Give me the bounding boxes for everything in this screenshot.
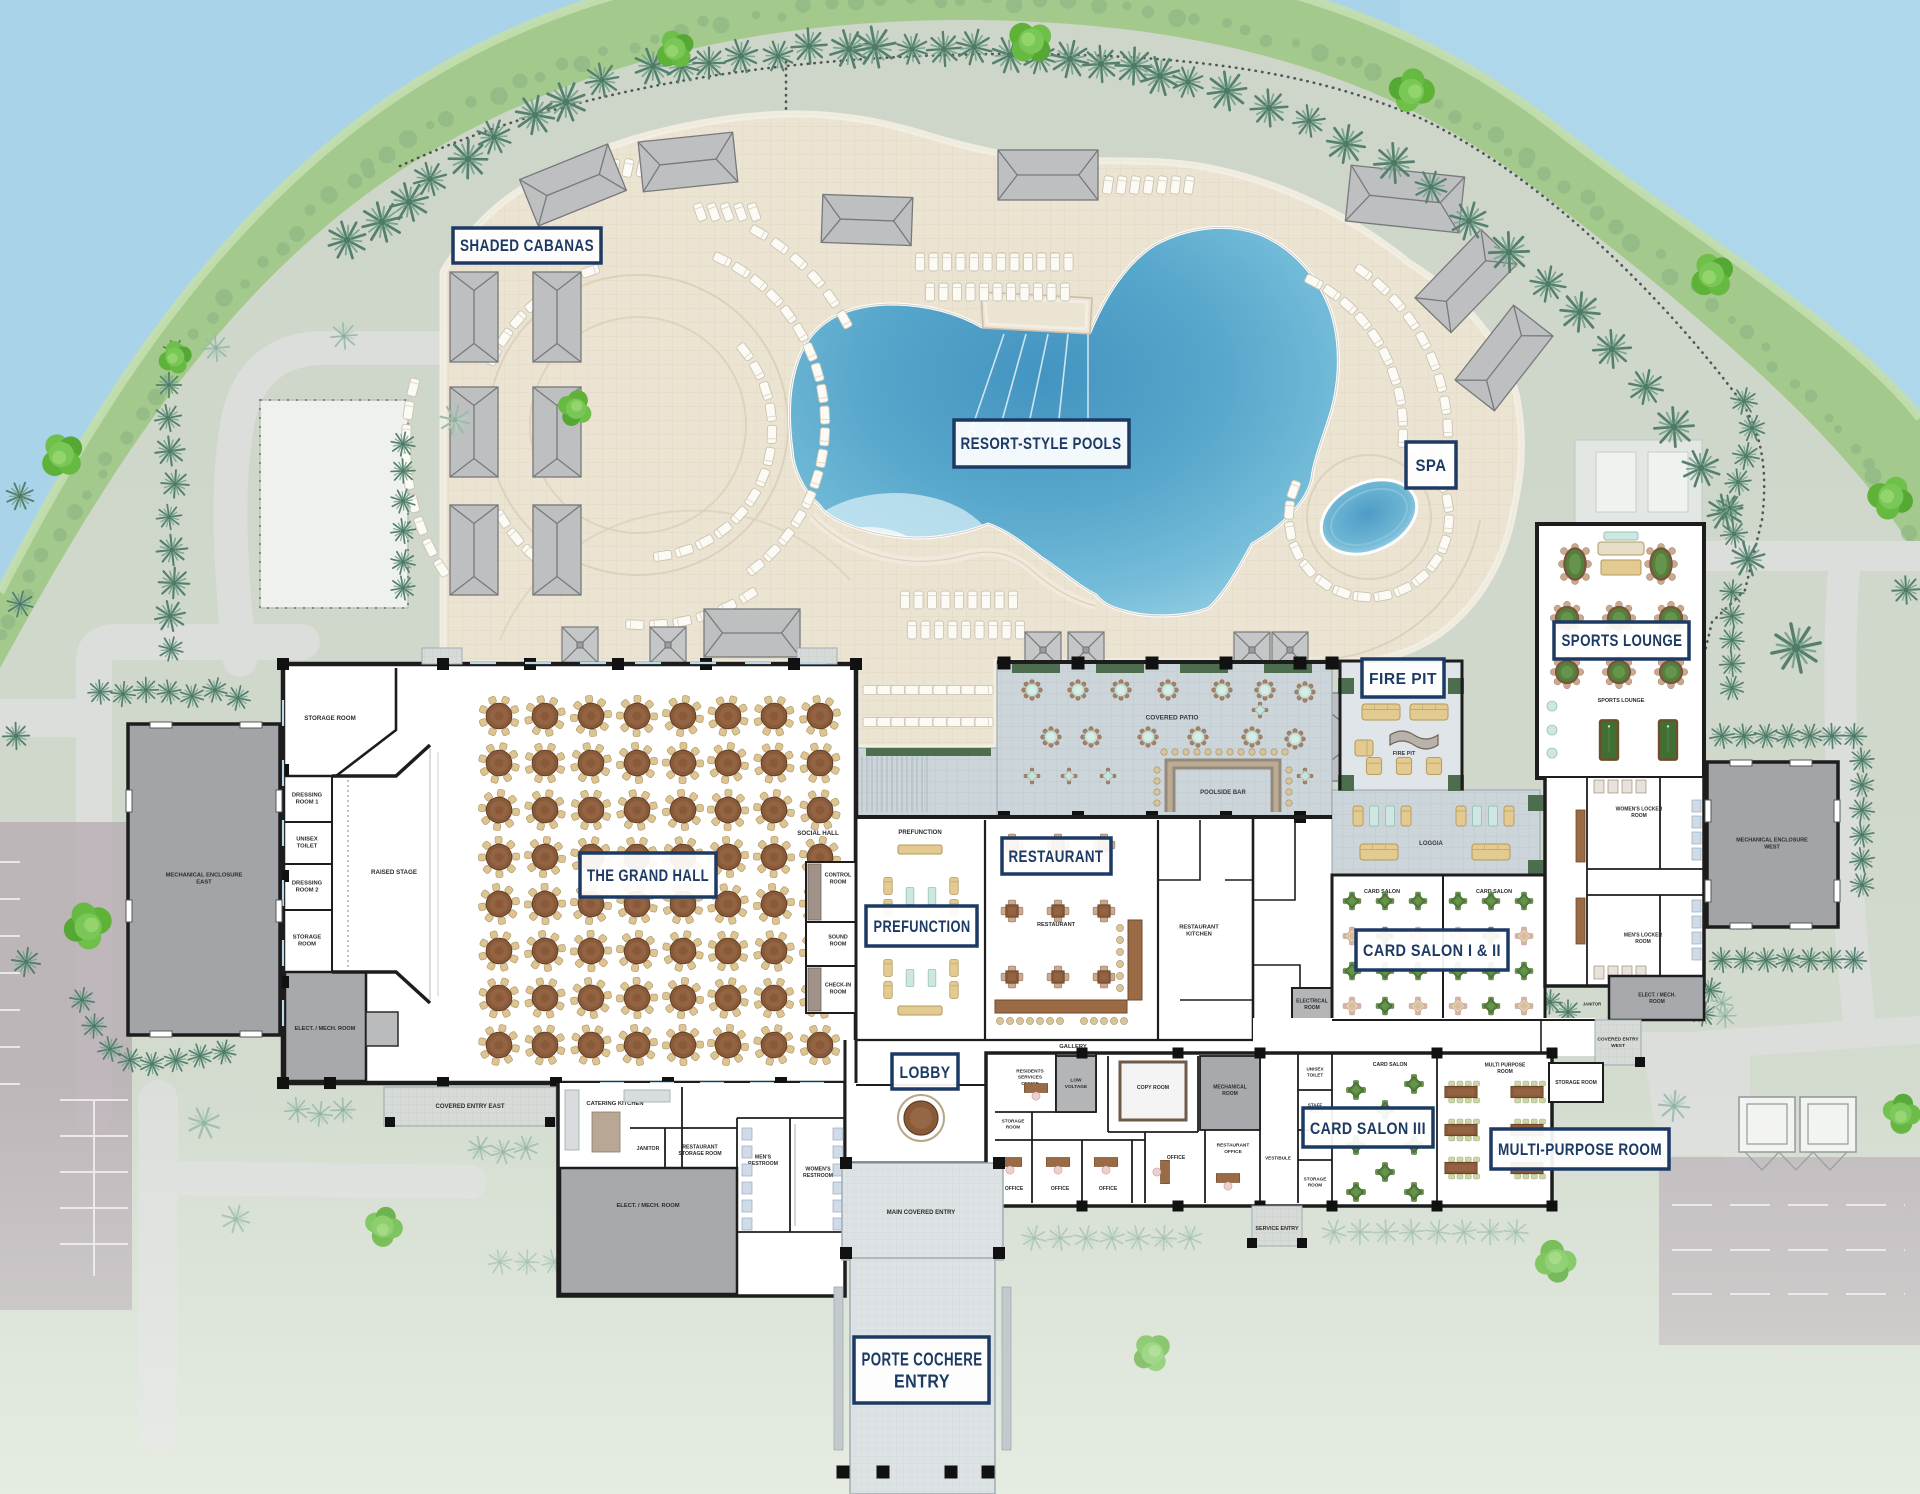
- svg-text:FIRE PIT: FIRE PIT: [1393, 751, 1416, 757]
- svg-text:ELECT. / MECH. ROOM: ELECT. / MECH. ROOM: [295, 1026, 356, 1032]
- svg-text:SHADED CABANAS: SHADED CABANAS: [460, 237, 594, 255]
- svg-text:PREFUNCTION: PREFUNCTION: [874, 918, 971, 936]
- svg-text:ROOM: ROOM: [830, 941, 847, 947]
- svg-text:POOLSIDE BAR: POOLSIDE BAR: [1200, 790, 1246, 796]
- svg-text:SOCIAL HALL: SOCIAL HALL: [797, 830, 839, 837]
- svg-text:ROOM: ROOM: [1304, 1005, 1320, 1011]
- svg-text:STORAGE ROOM: STORAGE ROOM: [678, 1151, 721, 1157]
- svg-text:ROOM: ROOM: [1222, 1091, 1238, 1097]
- svg-text:MAIN COVERED ENTRY: MAIN COVERED ENTRY: [887, 1210, 955, 1216]
- svg-text:CARD SALON: CARD SALON: [1364, 889, 1400, 895]
- svg-text:ROOM: ROOM: [298, 942, 316, 948]
- svg-text:DRESSING: DRESSING: [292, 792, 323, 798]
- svg-text:RESTAURANT: RESTAURANT: [1037, 922, 1076, 928]
- svg-text:COVERED ENTRY: COVERED ENTRY: [1597, 1037, 1639, 1043]
- svg-text:STORAGE ROOM: STORAGE ROOM: [304, 715, 355, 722]
- svg-text:CARD SALON I & II: CARD SALON I & II: [1363, 941, 1501, 960]
- svg-text:LOW: LOW: [1070, 1078, 1082, 1084]
- svg-text:JANITOR: JANITOR: [637, 1146, 660, 1152]
- svg-text:PREFUNCTION: PREFUNCTION: [898, 830, 941, 836]
- svg-text:SERVICE ENTRY: SERVICE ENTRY: [1255, 1226, 1299, 1232]
- svg-text:OFFICE: OFFICE: [1005, 1186, 1024, 1192]
- svg-text:ROOM 1: ROOM 1: [296, 800, 320, 806]
- svg-text:SPORTS LOUNGE: SPORTS LOUNGE: [1562, 632, 1683, 650]
- svg-text:COPY ROOM: COPY ROOM: [1137, 1085, 1169, 1091]
- svg-text:CARD SALON: CARD SALON: [1373, 1062, 1408, 1068]
- svg-text:CONTROL: CONTROL: [825, 872, 852, 878]
- svg-text:PORTE COCHERE: PORTE COCHERE: [862, 1350, 983, 1370]
- svg-text:SPORTS LOUNGE: SPORTS LOUNGE: [1598, 698, 1645, 704]
- svg-text:MEN'S: MEN'S: [755, 1154, 772, 1160]
- svg-text:VOLTAGE: VOLTAGE: [1065, 1084, 1088, 1090]
- svg-text:TOILET: TOILET: [1307, 1073, 1323, 1078]
- svg-text:WOMEN'S: WOMEN'S: [805, 1166, 831, 1172]
- svg-text:MULTI PURPOSE: MULTI PURPOSE: [1485, 1063, 1526, 1069]
- svg-text:COVERED PATIO: COVERED PATIO: [1146, 714, 1199, 721]
- svg-text:OFFICE: OFFICE: [1051, 1186, 1070, 1192]
- svg-text:STORAGE: STORAGE: [293, 934, 322, 940]
- svg-text:ROOM: ROOM: [1649, 999, 1665, 1005]
- svg-text:STORAGE: STORAGE: [1304, 1177, 1327, 1182]
- svg-text:ELECT. / MECH.: ELECT. / MECH.: [1638, 993, 1676, 999]
- svg-text:RESIDENTS: RESIDENTS: [1016, 1068, 1044, 1074]
- svg-text:ROOM: ROOM: [1006, 1125, 1020, 1130]
- svg-text:CARD SALON III: CARD SALON III: [1310, 1119, 1426, 1138]
- svg-text:RAISED STAGE: RAISED STAGE: [371, 869, 417, 876]
- svg-text:MECHANICAL ENCLOSURE: MECHANICAL ENCLOSURE: [166, 872, 243, 878]
- svg-text:ENTRY: ENTRY: [894, 1372, 950, 1392]
- svg-text:MULTI-PURPOSE ROOM: MULTI-PURPOSE ROOM: [1498, 1140, 1662, 1159]
- svg-text:ROOM: ROOM: [830, 879, 847, 885]
- svg-text:ROOM: ROOM: [830, 989, 847, 995]
- svg-text:RESTAURANT: RESTAURANT: [682, 1144, 718, 1150]
- svg-text:RESTROOM: RESTROOM: [748, 1161, 778, 1167]
- svg-text:CHECK-IN: CHECK-IN: [825, 982, 851, 988]
- svg-text:STORAGE: STORAGE: [1002, 1119, 1025, 1124]
- svg-text:TOILET: TOILET: [297, 844, 318, 850]
- svg-text:JANITOR: JANITOR: [1583, 1002, 1601, 1007]
- svg-text:OFFICE: OFFICE: [1224, 1149, 1242, 1155]
- svg-text:DRESSING: DRESSING: [292, 880, 323, 886]
- svg-text:FIRE PIT: FIRE PIT: [1369, 671, 1437, 688]
- svg-text:OFFICE: OFFICE: [1099, 1186, 1118, 1192]
- svg-text:WOMEN'S LOCKER: WOMEN'S LOCKER: [1616, 807, 1663, 813]
- svg-text:MECHANICAL: MECHANICAL: [1213, 1085, 1247, 1091]
- svg-text:KITCHEN: KITCHEN: [1186, 932, 1212, 938]
- svg-text:RESTROOM: RESTROOM: [803, 1173, 833, 1179]
- svg-text:SOUND: SOUND: [828, 934, 848, 940]
- svg-text:VESTIBULE: VESTIBULE: [1265, 1156, 1291, 1161]
- svg-text:ROOM: ROOM: [1308, 1183, 1322, 1188]
- svg-text:CARD SALON: CARD SALON: [1476, 889, 1512, 895]
- svg-text:RESTAURANT: RESTAURANT: [1179, 924, 1219, 930]
- svg-text:ROOM: ROOM: [1635, 939, 1651, 945]
- svg-text:LOGGIA: LOGGIA: [1419, 841, 1443, 847]
- svg-text:MECHANICAL ENCLOSURE: MECHANICAL ENCLOSURE: [1736, 837, 1808, 843]
- svg-text:RESTAURANT: RESTAURANT: [1009, 848, 1104, 866]
- svg-text:WEST: WEST: [1611, 1043, 1625, 1049]
- svg-text:OFFICE: OFFICE: [1167, 1155, 1186, 1161]
- svg-text:THE GRAND HALL: THE GRAND HALL: [587, 866, 709, 885]
- svg-text:MEN'S LOCKER: MEN'S LOCKER: [1624, 933, 1663, 939]
- svg-text:RESTAURANT: RESTAURANT: [1217, 1143, 1250, 1149]
- svg-text:UNISEX: UNISEX: [296, 836, 318, 842]
- svg-text:STORAGE ROOM: STORAGE ROOM: [1555, 1080, 1597, 1086]
- svg-text:ROOM: ROOM: [1497, 1069, 1513, 1075]
- svg-text:RESORT-STYLE POOLS: RESORT-STYLE POOLS: [961, 434, 1122, 453]
- svg-text:WEST: WEST: [1764, 844, 1780, 850]
- svg-text:SPA: SPA: [1416, 457, 1447, 475]
- svg-text:LOBBY: LOBBY: [900, 1064, 951, 1082]
- svg-text:ELECTRICAL: ELECTRICAL: [1296, 999, 1328, 1005]
- svg-text:ROOM 2: ROOM 2: [296, 888, 319, 894]
- svg-text:UNISEX: UNISEX: [1306, 1067, 1324, 1072]
- svg-text:COVERED ENTRY EAST: COVERED ENTRY EAST: [435, 1104, 504, 1110]
- svg-text:SERVICES: SERVICES: [1018, 1075, 1043, 1081]
- svg-text:ELECT. / MECH. ROOM: ELECT. / MECH. ROOM: [616, 1203, 679, 1209]
- svg-text:EAST: EAST: [196, 880, 212, 886]
- svg-text:ROOM: ROOM: [1631, 813, 1647, 819]
